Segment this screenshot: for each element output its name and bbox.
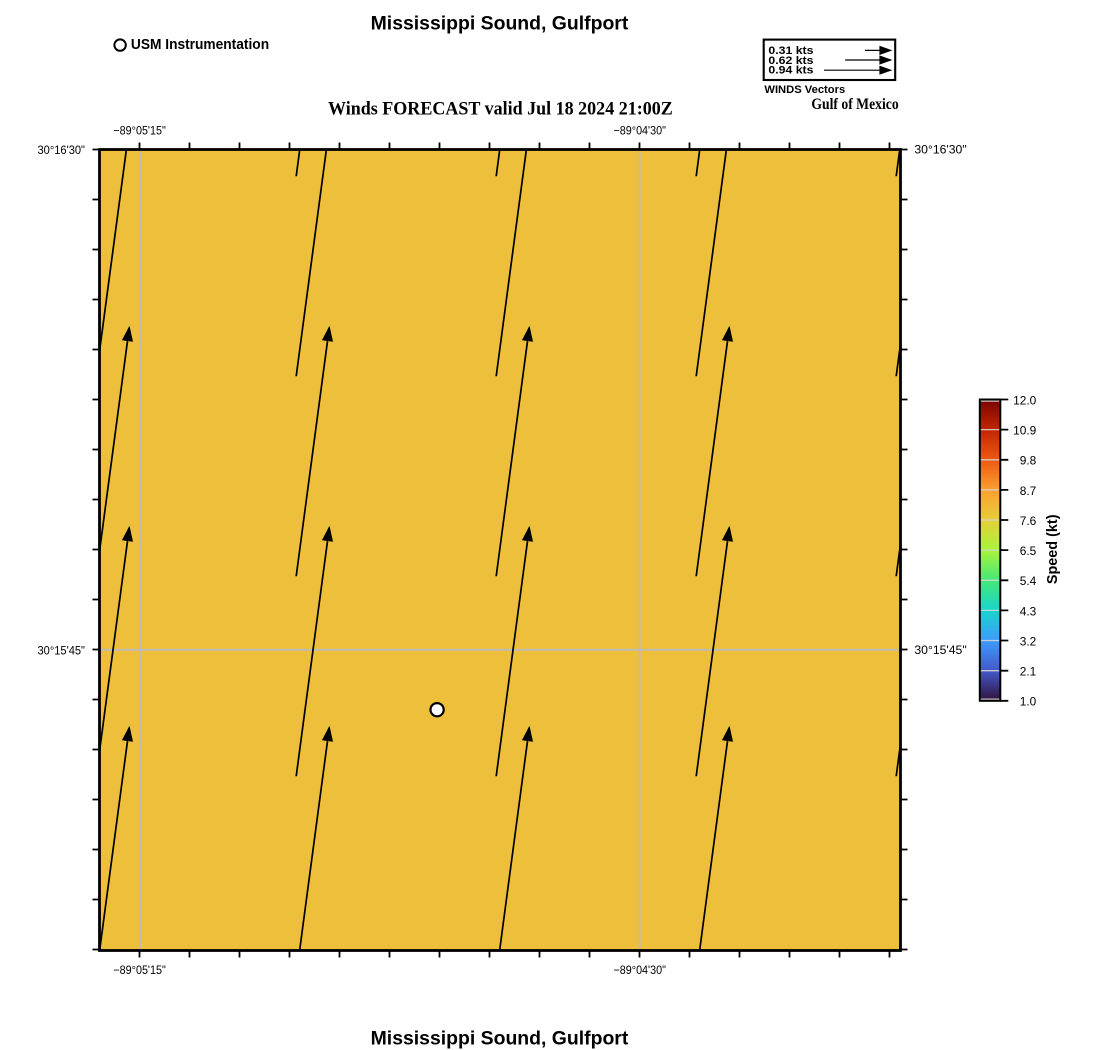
svg-text:WINDS Vectors: WINDS Vectors xyxy=(764,84,845,96)
svg-text:−89°05'15": −89°05'15" xyxy=(113,123,165,137)
svg-text:8.7: 8.7 xyxy=(1020,484,1037,498)
svg-text:10.9: 10.9 xyxy=(1013,424,1037,438)
svg-text:4.3: 4.3 xyxy=(1020,604,1037,618)
svg-text:USM Instrumentation: USM Instrumentation xyxy=(131,37,269,53)
svg-text:Mississippi Sound, Gulfport: Mississippi Sound, Gulfport xyxy=(371,1028,629,1050)
svg-text:−89°04'30": −89°04'30" xyxy=(614,963,666,977)
svg-text:0.94 kts: 0.94 kts xyxy=(768,65,813,77)
svg-text:Speed (kt): Speed (kt) xyxy=(1045,514,1061,584)
svg-text:30°16'30": 30°16'30" xyxy=(914,142,966,156)
svg-text:6.5: 6.5 xyxy=(1020,544,1037,558)
svg-text:9.8: 9.8 xyxy=(1020,454,1037,468)
svg-text:3.2: 3.2 xyxy=(1020,634,1037,648)
svg-text:−89°05'15": −89°05'15" xyxy=(113,963,165,977)
svg-text:Mississippi Sound, Gulfport: Mississippi Sound, Gulfport xyxy=(371,13,629,35)
svg-text:2.1: 2.1 xyxy=(1020,665,1037,679)
svg-text:Winds FORECAST valid Jul 18 20: Winds FORECAST valid Jul 18 2024 21:00Z xyxy=(328,100,673,120)
svg-text:Gulf of Mexico: Gulf of Mexico xyxy=(811,96,899,113)
svg-text:30°15'45": 30°15'45" xyxy=(914,643,966,657)
svg-text:−89°04'30": −89°04'30" xyxy=(614,123,666,137)
svg-text:5.4: 5.4 xyxy=(1020,574,1037,588)
svg-text:30°16'30": 30°16'30" xyxy=(38,143,86,157)
svg-text:1.0: 1.0 xyxy=(1020,695,1037,709)
svg-text:7.6: 7.6 xyxy=(1020,514,1037,528)
svg-text:30°15'45": 30°15'45" xyxy=(38,643,86,657)
svg-text:12.0: 12.0 xyxy=(1013,393,1037,407)
